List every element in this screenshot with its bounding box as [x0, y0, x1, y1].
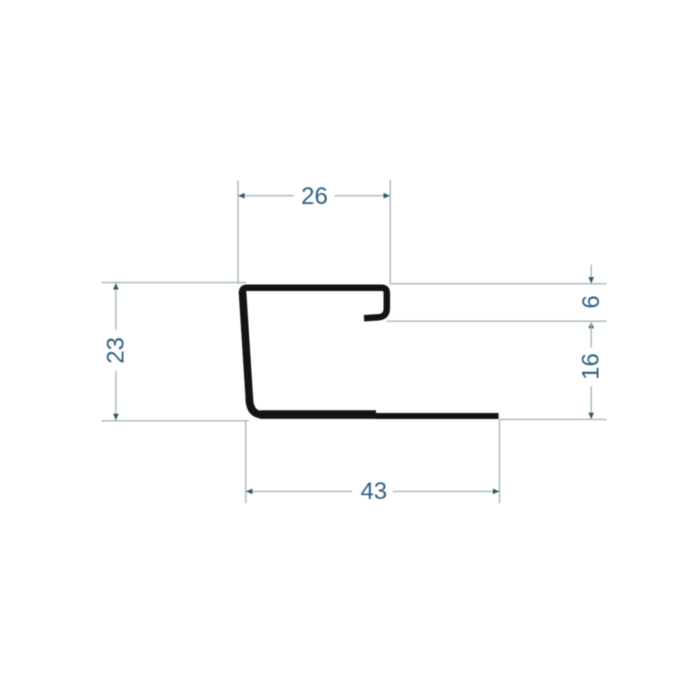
svg-text:26: 26 — [301, 183, 328, 210]
svg-text:16: 16 — [578, 353, 605, 380]
svg-text:23: 23 — [102, 337, 129, 364]
svg-text:6: 6 — [578, 295, 605, 308]
svg-text:43: 43 — [360, 478, 387, 505]
